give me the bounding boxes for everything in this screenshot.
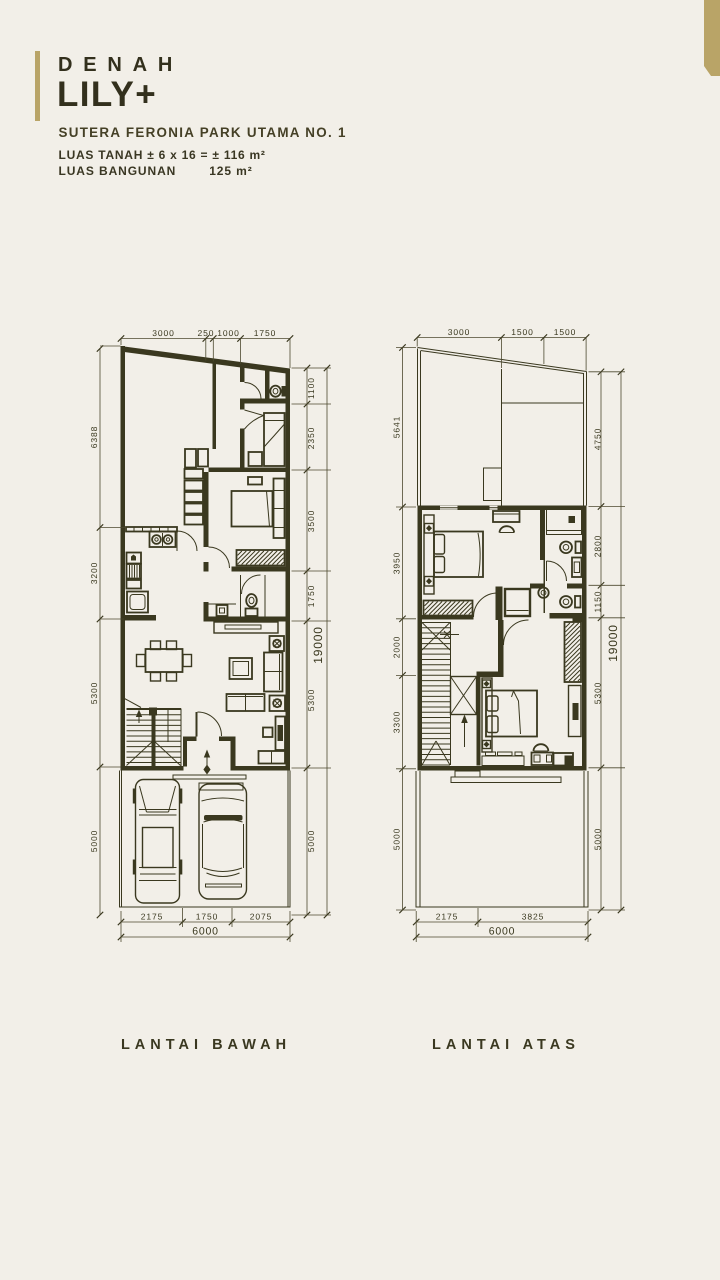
svg-text:1150: 1150 — [593, 591, 603, 613]
svg-text:3825: 3825 — [522, 912, 545, 922]
svg-text:5641: 5641 — [392, 416, 402, 439]
svg-text:2175: 2175 — [141, 912, 164, 922]
svg-text:6388: 6388 — [89, 426, 99, 449]
svg-text:3000: 3000 — [152, 328, 175, 338]
svg-text:5000: 5000 — [306, 830, 316, 853]
svg-text:1750: 1750 — [306, 585, 316, 608]
svg-text:1500: 1500 — [511, 327, 534, 337]
svg-text:6000: 6000 — [489, 926, 516, 938]
svg-text:3300: 3300 — [392, 711, 402, 734]
svg-text:3500: 3500 — [306, 510, 316, 533]
svg-text:1000: 1000 — [217, 328, 240, 338]
svg-text:2175: 2175 — [436, 912, 459, 922]
svg-text:1750: 1750 — [254, 328, 277, 338]
svg-text:2350: 2350 — [306, 427, 316, 450]
svg-text:5000: 5000 — [593, 828, 603, 851]
svg-text:2000: 2000 — [392, 636, 402, 659]
svg-text:1500: 1500 — [554, 327, 577, 337]
svg-text:1750: 1750 — [196, 912, 219, 922]
svg-text:3000: 3000 — [448, 327, 471, 337]
svg-text:19000: 19000 — [606, 624, 620, 661]
svg-text:2800: 2800 — [593, 535, 603, 558]
svg-text:5300: 5300 — [306, 689, 316, 712]
svg-text:5300: 5300 — [593, 682, 603, 705]
svg-text:1100: 1100 — [306, 377, 316, 399]
svg-text:5000: 5000 — [89, 830, 99, 853]
svg-text:250: 250 — [198, 328, 215, 338]
svg-text:19000: 19000 — [311, 626, 325, 663]
svg-text:3950: 3950 — [392, 552, 402, 575]
svg-text:5300: 5300 — [89, 682, 99, 705]
svg-text:5000: 5000 — [392, 828, 402, 851]
svg-text:4750: 4750 — [593, 428, 603, 451]
svg-text:6000: 6000 — [192, 926, 219, 938]
svg-text:2075: 2075 — [250, 912, 273, 922]
svg-text:3200: 3200 — [89, 562, 99, 585]
